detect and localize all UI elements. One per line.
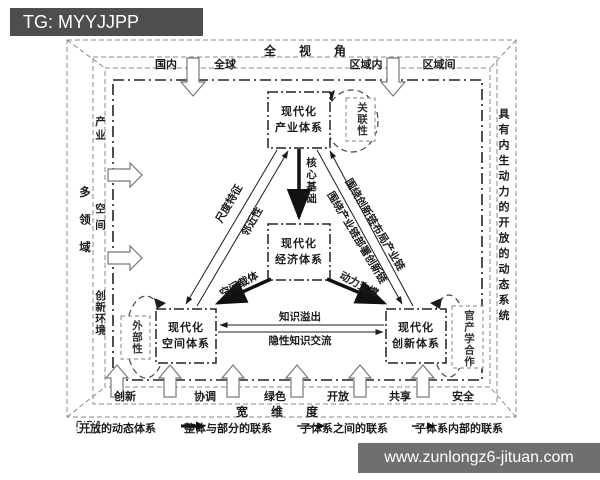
economy-system-node: 现代化经济体系 — [268, 236, 330, 268]
domain-space: 空间 — [92, 203, 107, 236]
scope-global: 全球 — [205, 56, 245, 72]
diagram-canvas: 全 视 角 国内 全球 区域内 区域间 多领域 产业 空间 创新环境 具有内生动… — [0, 0, 600, 480]
space-system-node: 现代化空间体系 — [156, 320, 216, 352]
externality-label: 外部性 — [129, 320, 144, 355]
dimension-innovation: 创新 — [105, 388, 145, 404]
up-arrow — [222, 365, 244, 397]
dimension-label: 宽 维 度 — [222, 403, 342, 420]
core-foundation-label: 核心基础 — [303, 157, 318, 205]
industry-system-node: 现代化产业体系 — [268, 104, 330, 136]
right-arrow — [108, 246, 142, 270]
dimension-green: 绿色 — [255, 388, 295, 404]
scope-domestic: 国内 — [146, 56, 186, 72]
watermark-tag: TG: MYYJJPP — [10, 8, 203, 36]
dimension-open: 开放 — [318, 388, 358, 404]
up-arrow — [159, 365, 181, 397]
domain-label: 多领域 — [76, 186, 92, 269]
industry-academia-label: 官产学合作 — [461, 310, 476, 368]
relevance-label: 关联性 — [354, 102, 369, 137]
watermark-url: www.zunlongz6-jituan.com — [358, 443, 600, 473]
domain-industry: 产业 — [92, 116, 107, 143]
knowledge-spillover-label: 知识溢出 — [268, 309, 332, 324]
dimension-coordination: 协调 — [185, 388, 225, 404]
legend-item-between-subsystems: 子体系之间的联系 — [297, 420, 388, 436]
legend-item-within-subsystem: 子体系内部的联系 — [412, 420, 503, 436]
legend-item-whole-part: 整体与部分的联系 — [181, 420, 272, 436]
legend-item-open-system: 开放的动态体系 — [76, 420, 156, 436]
tacit-exchange-label: 隐性知识交流 — [258, 333, 342, 348]
dimension-sharing: 共享 — [380, 388, 420, 404]
innovation-system-node: 现代化创新体系 — [386, 320, 446, 352]
scope-intra-region: 区域内 — [340, 56, 392, 72]
scope-inter-region: 区域间 — [413, 56, 465, 72]
system-description-label: 具有内生动力的开放的动态系统 — [495, 108, 511, 325]
dimension-security: 安全 — [443, 388, 483, 404]
domain-innovation-env: 创新环境 — [92, 290, 107, 336]
